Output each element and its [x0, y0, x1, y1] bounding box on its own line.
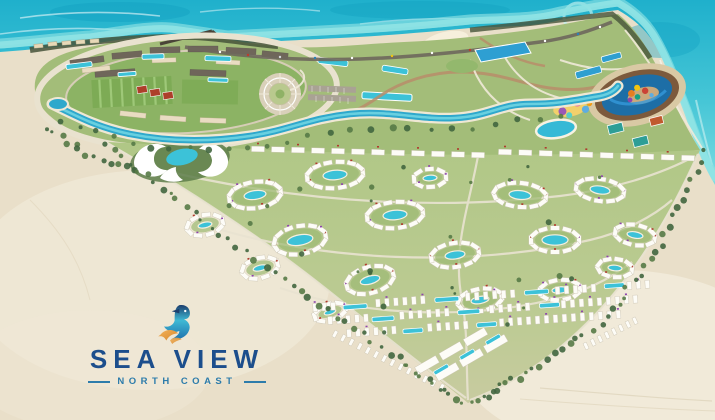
tree [469, 181, 472, 184]
tree [299, 251, 304, 256]
tree [572, 336, 578, 342]
tree [622, 285, 627, 290]
tree [328, 130, 334, 136]
unit-tag [455, 263, 457, 265]
unit-tag [619, 222, 621, 224]
brand-name: SEA VIEW [72, 346, 282, 373]
tree [299, 288, 305, 294]
building [449, 240, 459, 246]
unit-tag [268, 179, 270, 181]
tree [486, 395, 492, 401]
unit-tag [410, 199, 412, 201]
tree [558, 114, 563, 119]
tree [601, 322, 607, 328]
building [251, 146, 264, 152]
tree [102, 158, 107, 163]
unit-tag [320, 226, 322, 228]
tree [245, 145, 250, 150]
cluster-pool [423, 175, 437, 182]
tree [79, 125, 83, 129]
brand-tagline: NORTH COAST [117, 376, 236, 387]
tree [453, 396, 460, 403]
tree [517, 278, 522, 283]
tree [370, 199, 373, 202]
tree [292, 284, 297, 289]
tree [526, 165, 529, 168]
cluster-pool [542, 235, 568, 245]
building [635, 243, 644, 248]
unit-tag [651, 228, 653, 230]
building [626, 222, 635, 227]
tree [211, 227, 214, 230]
unit-tag [598, 197, 600, 199]
unit-tag [409, 308, 411, 310]
tree [206, 147, 213, 154]
unit-tag [452, 239, 454, 241]
tree [93, 128, 98, 133]
tree [151, 180, 155, 184]
tree [108, 161, 114, 167]
tree [696, 169, 702, 175]
building [645, 280, 650, 288]
building [519, 150, 532, 156]
tree [450, 286, 453, 289]
tree [493, 122, 499, 128]
building [465, 293, 470, 301]
building [483, 291, 488, 299]
unit-tag [457, 148, 459, 150]
tree [439, 388, 443, 392]
tree [245, 249, 249, 253]
tree [382, 330, 386, 334]
tree [112, 134, 117, 139]
tree [460, 402, 463, 405]
building [271, 147, 284, 153]
building [594, 198, 604, 204]
unit-tag [617, 308, 619, 310]
building [331, 302, 336, 310]
tree [680, 197, 687, 204]
tree [227, 203, 232, 208]
tree [470, 400, 473, 403]
building [454, 322, 459, 330]
building [551, 226, 560, 231]
tree [684, 187, 690, 193]
building [573, 285, 578, 293]
building [393, 298, 398, 306]
building [507, 304, 512, 312]
unit-tag [428, 165, 430, 167]
tree [92, 154, 96, 158]
tree [544, 356, 551, 363]
building [311, 148, 324, 154]
building [291, 147, 304, 153]
building [555, 286, 560, 294]
tree [649, 256, 655, 262]
building [606, 297, 611, 305]
unit-tag [257, 143, 259, 145]
building [346, 329, 351, 337]
tree [699, 160, 704, 165]
building [526, 316, 531, 324]
unit-tag [304, 249, 306, 251]
row-pool [477, 322, 497, 328]
building [249, 276, 258, 281]
building [411, 150, 424, 156]
tree [357, 270, 360, 273]
building [445, 322, 450, 330]
tagline-rule-left [88, 381, 110, 383]
brand-logo: SEA VIEW NORTH COAST [72, 304, 282, 387]
tree [405, 363, 409, 367]
tree [652, 249, 659, 256]
unit-tag [417, 147, 419, 149]
tree [102, 142, 107, 147]
building [499, 318, 504, 326]
unit-tag [375, 202, 377, 204]
tree [404, 125, 411, 132]
building [597, 297, 602, 305]
building [550, 297, 559, 302]
tree [687, 177, 692, 182]
unit-tag [545, 147, 547, 149]
building [375, 299, 380, 307]
tree [342, 318, 348, 324]
tree [559, 346, 565, 352]
building [553, 315, 558, 323]
unit-tag [509, 316, 511, 318]
tree [430, 381, 433, 384]
building [289, 252, 298, 257]
unit-tag [545, 313, 547, 315]
tree [124, 163, 131, 170]
tree [619, 303, 623, 307]
tree [641, 263, 647, 269]
tree [112, 147, 118, 153]
building [385, 226, 394, 231]
building [561, 277, 570, 282]
tree [449, 125, 455, 131]
tree [367, 340, 371, 344]
tree [216, 233, 221, 238]
building [492, 291, 497, 299]
unit-tag [287, 225, 289, 227]
building [254, 179, 263, 184]
unit-tag [553, 296, 555, 298]
building [516, 303, 521, 311]
building [325, 186, 334, 191]
central-plaza [259, 73, 301, 115]
tree [538, 117, 543, 122]
seahorse-icon [151, 304, 203, 344]
tree [58, 119, 64, 125]
building [564, 286, 569, 294]
unit-tag [626, 150, 628, 152]
tree [283, 277, 287, 281]
building [336, 160, 345, 165]
unit-tag [314, 301, 316, 303]
building [426, 184, 435, 189]
building [562, 314, 567, 322]
unit-tag [554, 224, 556, 226]
unit-tag [350, 159, 352, 161]
tree [579, 333, 583, 337]
building [474, 292, 479, 300]
tree [115, 161, 121, 167]
building [498, 304, 503, 312]
tree [172, 196, 178, 202]
building [354, 314, 359, 322]
building [417, 310, 422, 318]
tree [390, 124, 397, 131]
tree [505, 322, 510, 327]
tree [146, 171, 152, 177]
building [582, 285, 587, 293]
building [391, 326, 396, 334]
unit-tag [542, 282, 544, 284]
building [591, 284, 596, 292]
tree [598, 176, 601, 179]
tree [498, 382, 502, 386]
unit-tag [297, 144, 299, 146]
building [636, 281, 641, 289]
building [328, 316, 333, 324]
building [427, 323, 432, 331]
tree [226, 236, 230, 240]
building [517, 205, 526, 210]
building [396, 200, 405, 205]
tree [475, 398, 480, 403]
building [399, 311, 404, 319]
tree [591, 328, 597, 334]
tree [60, 133, 66, 139]
tree [335, 316, 340, 321]
tree [674, 204, 681, 211]
building [633, 295, 638, 303]
tree [508, 178, 512, 182]
building [620, 153, 633, 159]
building [431, 151, 444, 157]
tree [274, 270, 278, 274]
tree [265, 144, 270, 149]
unit-tag [585, 148, 587, 150]
building [426, 309, 431, 317]
cluster-pool [608, 265, 622, 272]
unit-tag [486, 285, 488, 287]
tree [248, 221, 253, 226]
building [501, 290, 506, 298]
unit-tag [589, 296, 591, 298]
unit-tag [418, 181, 420, 183]
building [661, 154, 674, 160]
building [613, 275, 622, 280]
building [408, 311, 413, 319]
tree [74, 145, 80, 151]
building [463, 321, 468, 329]
tree [351, 326, 357, 332]
tree [508, 376, 513, 381]
tree [401, 165, 406, 170]
tree [470, 127, 474, 131]
tree [131, 142, 135, 146]
building [331, 148, 344, 154]
tree [380, 345, 384, 349]
building [585, 176, 594, 182]
building [598, 311, 603, 319]
tree [414, 372, 418, 376]
unit-tag [385, 296, 387, 298]
tree [453, 292, 456, 295]
tree [514, 116, 520, 122]
tree [443, 388, 447, 392]
tree [82, 153, 88, 159]
building [498, 149, 511, 155]
unit-tag [606, 256, 608, 258]
building [580, 313, 585, 321]
row-pool [604, 283, 624, 289]
tree [194, 210, 199, 215]
building [551, 250, 560, 255]
building [391, 150, 404, 156]
building [201, 212, 210, 217]
tree [265, 204, 269, 208]
unit-tag [337, 145, 339, 147]
building [451, 152, 464, 158]
unit-tag [581, 311, 583, 313]
unit-tag [521, 203, 523, 205]
tree [50, 130, 53, 133]
tree [135, 170, 139, 174]
tree [227, 146, 232, 151]
building [559, 151, 572, 157]
tree [170, 192, 173, 195]
building [539, 150, 552, 156]
building [371, 149, 384, 155]
building [561, 300, 566, 308]
tree [522, 306, 525, 309]
building [489, 305, 494, 313]
building [246, 206, 255, 211]
tree [232, 245, 238, 251]
building [452, 264, 462, 270]
building [579, 299, 584, 307]
building [570, 299, 575, 307]
building [373, 327, 378, 335]
building [402, 297, 407, 305]
tree [446, 392, 450, 396]
unit-tag [315, 162, 317, 164]
tree [569, 276, 574, 281]
unit-tag [625, 293, 627, 295]
tree [449, 235, 453, 239]
unit-tag [554, 248, 556, 250]
row-pool [403, 328, 423, 334]
building [588, 298, 593, 306]
tree [639, 274, 644, 279]
building [483, 286, 492, 291]
building [580, 152, 593, 158]
unit-tag [365, 326, 367, 328]
tree [606, 314, 611, 319]
tree [45, 127, 49, 131]
tree [634, 278, 638, 282]
unit-tag [445, 306, 447, 308]
tree [198, 218, 201, 221]
building [296, 223, 305, 228]
building [411, 296, 416, 304]
tree [546, 219, 552, 225]
building [641, 154, 654, 160]
tree [189, 145, 193, 149]
building [600, 152, 613, 158]
tree [166, 146, 171, 151]
building [510, 290, 515, 298]
tree [536, 364, 543, 371]
unit-tag [341, 183, 343, 185]
tree [659, 231, 665, 237]
tree [524, 371, 528, 375]
tree [381, 304, 387, 310]
tree [63, 141, 69, 147]
building [363, 314, 368, 322]
building [351, 149, 364, 155]
building [525, 303, 530, 311]
tree [161, 187, 168, 194]
tree [667, 224, 674, 231]
tree [368, 126, 375, 133]
tree [427, 376, 433, 382]
tree [483, 395, 486, 398]
building [444, 308, 449, 316]
building [420, 296, 425, 304]
building [425, 167, 434, 172]
building [681, 155, 694, 161]
tree [670, 213, 675, 218]
building [544, 315, 549, 323]
unit-tag [445, 173, 447, 175]
building [517, 317, 522, 325]
unit-tag [627, 239, 629, 241]
unit-tag [605, 271, 607, 273]
tagline-rule-right [244, 381, 266, 383]
tree [185, 204, 191, 210]
tree [147, 145, 154, 152]
tree [660, 243, 666, 249]
unit-tag [421, 294, 423, 296]
unit-tag [493, 289, 495, 291]
masterplan-image: SEA VIEW NORTH COAST [0, 0, 715, 420]
building [471, 152, 484, 158]
tree [491, 389, 497, 395]
building [571, 313, 576, 321]
building [435, 309, 440, 317]
unit-tag [565, 284, 567, 286]
tree [347, 127, 353, 133]
tree [250, 257, 257, 264]
tree [316, 303, 323, 310]
unit-tag [504, 146, 506, 148]
building [357, 292, 366, 297]
tree [398, 354, 404, 360]
building [535, 316, 540, 324]
tree [557, 273, 563, 279]
tree [285, 141, 289, 145]
unit-tag [667, 151, 669, 153]
unit-tag [261, 203, 263, 205]
unit-tag [401, 223, 403, 225]
tree [369, 184, 374, 189]
tree [552, 350, 559, 357]
